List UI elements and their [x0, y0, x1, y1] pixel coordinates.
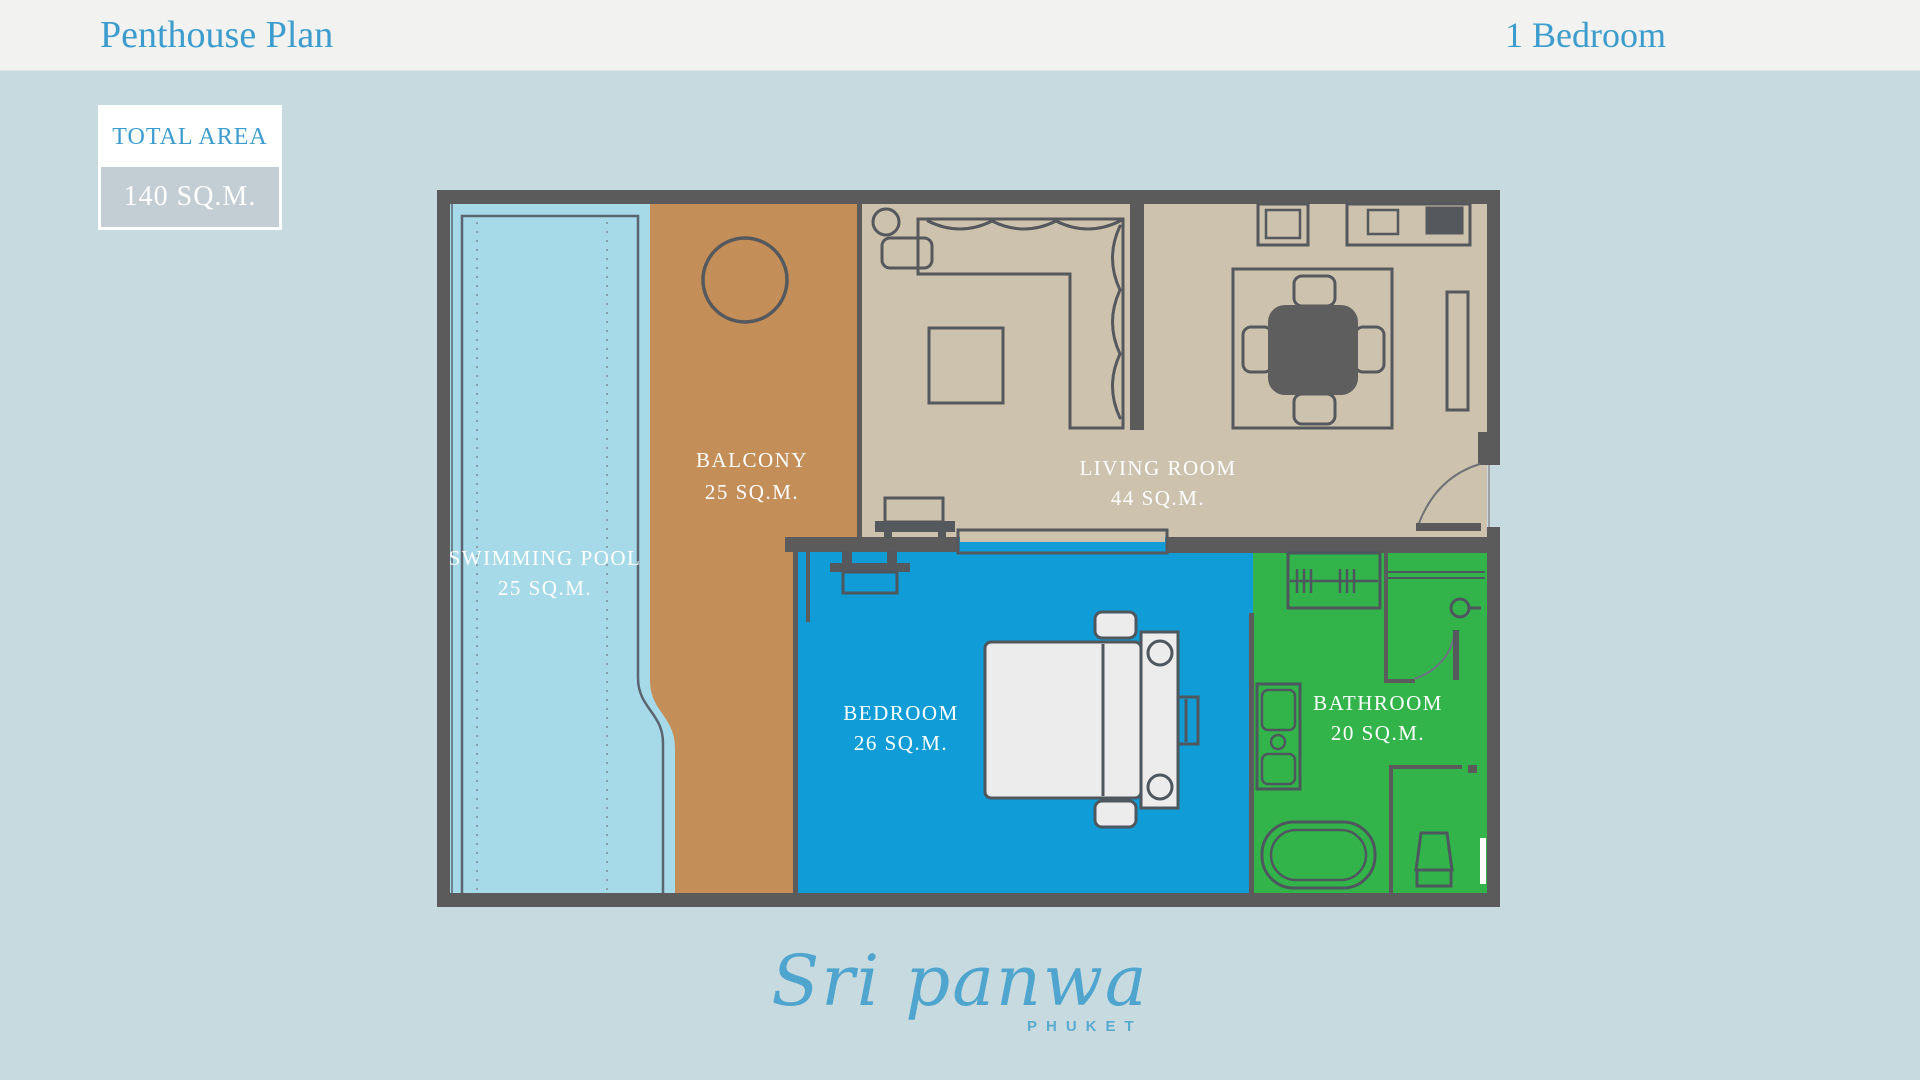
- door-leaf: [1416, 523, 1481, 531]
- wall-bedroom-top-left: [785, 537, 958, 552]
- brand-name: Sri panwa: [771, 940, 1148, 1022]
- tv-bench-foot: [938, 532, 946, 538]
- sliding-door-upper: [960, 532, 1165, 542]
- wall-top: [437, 190, 1500, 204]
- dresser-leg: [842, 551, 852, 564]
- room-label: BATHROOM: [1313, 691, 1443, 715]
- tv-bench: [875, 521, 955, 532]
- sliding-door: [958, 530, 1167, 553]
- wall-bedroom-top-right: [1167, 537, 1487, 553]
- brand-logo-inner: Sri panwa PHUKET: [771, 946, 1148, 1035]
- tv-bench-foot: [884, 532, 892, 538]
- dining-table: [1268, 305, 1358, 395]
- wc-window: [1480, 838, 1486, 884]
- wall-bottom: [437, 893, 1500, 907]
- nightstand: [1095, 612, 1136, 638]
- room-label: LIVING ROOM: [1079, 456, 1236, 480]
- floor-plan: SWIMMING POOL 25 SQ.M. BALCONY 25 SQ.M. …: [0, 0, 1920, 1080]
- room-area-label: 25 SQ.M.: [498, 576, 592, 600]
- kitchen-appliance: [1427, 208, 1462, 233]
- room-area-label: 26 SQ.M.: [854, 731, 948, 755]
- wall-shower-left: [1384, 553, 1388, 683]
- brand-location: PHUKET: [771, 1018, 1148, 1035]
- room-label: BEDROOM: [843, 701, 959, 725]
- room-area-label: 44 SQ.M.: [1111, 486, 1205, 510]
- nightstand: [1095, 801, 1136, 827]
- brand-logo: Sri panwa PHUKET: [0, 946, 1920, 1036]
- wall-wc-top: [1389, 765, 1462, 769]
- dresser-leg: [887, 551, 897, 564]
- bed-pillow: [1148, 641, 1172, 665]
- page: Penthouse Plan 1 Bedroom TOTAL AREA 140 …: [0, 0, 1920, 1080]
- wall-right-lower: [1487, 527, 1500, 907]
- bed-mattress: [985, 642, 1141, 798]
- room-label: SWIMMING POOL: [449, 546, 642, 570]
- wall-kitchen-partition: [1130, 204, 1144, 430]
- wall-shower-bottom: [1384, 679, 1415, 683]
- bed-pillow: [1148, 775, 1172, 799]
- shower-door-leaf: [1453, 630, 1459, 680]
- wall-wc-left: [1389, 765, 1393, 894]
- room-area-label: 20 SQ.M.: [1331, 721, 1425, 745]
- sliding-door-lower: [960, 542, 1165, 552]
- room-label: BALCONY: [696, 448, 808, 472]
- wall-right-upper: [1487, 190, 1500, 465]
- door-jamb: [1478, 432, 1488, 465]
- wall-wc-stub: [1468, 765, 1477, 773]
- wall-bedroom-left: [793, 552, 798, 894]
- room-area-label: 25 SQ.M.: [705, 480, 799, 504]
- wall-balcony-living: [857, 204, 862, 537]
- wall-bedroom-stub: [806, 552, 810, 622]
- wall-bedroom-bathroom: [1249, 613, 1254, 894]
